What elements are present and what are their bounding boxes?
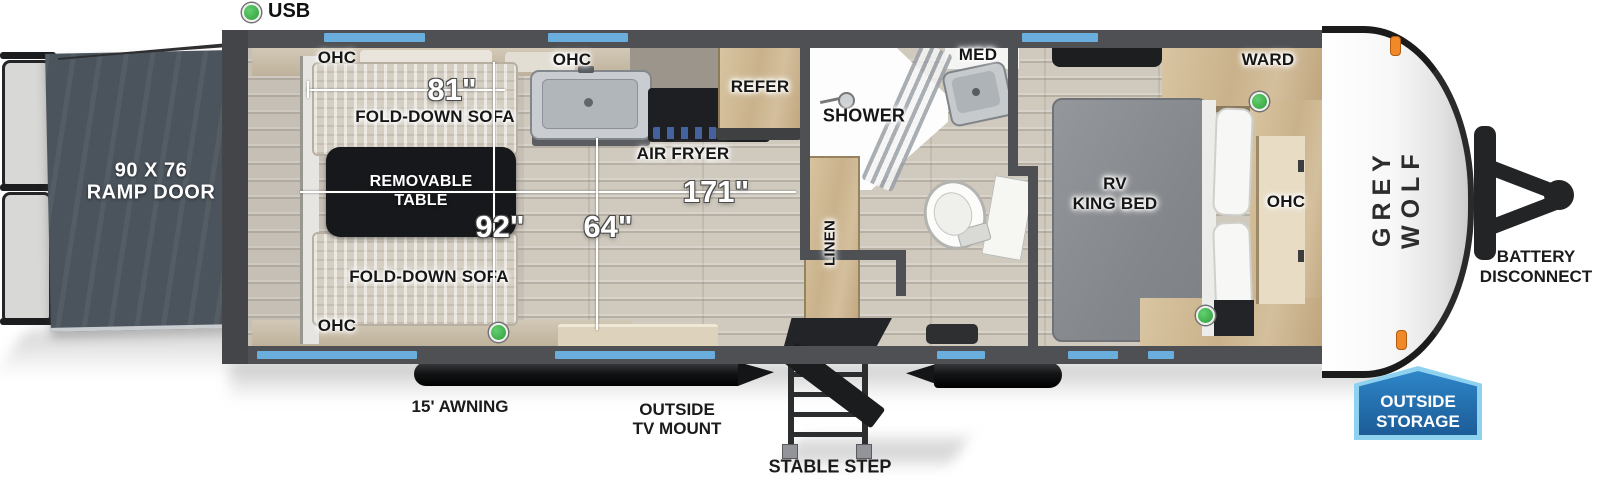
window: [937, 351, 985, 359]
usb-indicator-icon: [489, 323, 508, 342]
awning-tube-right: [934, 362, 1062, 388]
window: [257, 351, 417, 359]
linen-label: LINEN: [822, 220, 839, 266]
removable-table-label: TABLE: [394, 192, 447, 210]
window: [324, 33, 425, 42]
battery-disconnect-label: DISCONNECT: [1480, 267, 1592, 287]
dim-line-92: [493, 62, 495, 330]
bath-sink-drain: [972, 88, 980, 96]
tv-mount-label: OUTSIDE: [639, 400, 715, 420]
wall-rear: [222, 30, 248, 364]
usb-indicator-icon: [1250, 92, 1269, 111]
window: [548, 33, 628, 42]
hitch-coupler: [1544, 180, 1574, 210]
outside-storage-label: STORAGE: [1354, 412, 1482, 432]
window: [1068, 351, 1118, 359]
awning-tube-left: [414, 362, 738, 386]
ohc-label-bedroom: OHC: [1267, 192, 1305, 212]
dim-92: 92": [475, 209, 524, 245]
dim-81: 81": [427, 72, 476, 108]
dim-64: 64": [583, 209, 632, 245]
sink-drain: [584, 98, 593, 107]
window: [1148, 351, 1174, 359]
bedroom-cubby: [1214, 300, 1254, 336]
brand-text: GREY WOLF: [1368, 96, 1426, 300]
wall-bath-right-upper: [1008, 48, 1018, 170]
refer-label: REFER: [731, 77, 790, 97]
usb-indicator-icon: [1196, 306, 1215, 325]
tv-mount-label: TV MOUNT: [633, 419, 722, 439]
ohc-label-garage-bottom: OHC: [318, 316, 356, 336]
bed-label: RV: [1103, 174, 1127, 194]
ramp-door-name-label: RAMP DOOR: [87, 182, 216, 205]
entry-step-box: [926, 324, 978, 344]
burner-row: [653, 127, 719, 139]
ohc-label-garage-top: OHC: [318, 48, 356, 68]
hitch-jack: [1474, 126, 1496, 260]
ward-label: WARD: [1242, 50, 1295, 70]
wardrobe-hinge: [1298, 250, 1304, 262]
awning-label: 15' AWNING: [412, 397, 509, 417]
ramp-door-size-label: 90 X 76: [115, 160, 187, 183]
entry-door-open: [784, 318, 892, 346]
stable-step-label: STABLE STEP: [769, 457, 892, 478]
wardrobe-hinge: [1298, 160, 1304, 172]
step-rung: [788, 432, 868, 437]
fold-down-sofa-top-label: FOLD-DOWN SOFA: [355, 107, 515, 127]
wall-bath-stub: [896, 250, 906, 296]
med-label: MED: [959, 45, 997, 65]
dim-tick-81: [307, 81, 309, 98]
rv-floorplan-canvas: USB 90 X 76 RAMP DOOR REMOVABLE TABLE OH…: [0, 0, 1600, 492]
refrigerator-base: [716, 128, 802, 140]
outside-storage-label: OUTSIDE: [1354, 392, 1482, 412]
ramp-hinge-bar: [0, 318, 56, 325]
usb-label: USB: [268, 0, 310, 23]
bed-label: KING BED: [1073, 194, 1158, 214]
bed-pillow: [1212, 107, 1254, 216]
ramp-flap-lower: [2, 192, 52, 324]
removable-table-label: REMOVABLE: [370, 173, 473, 191]
battery-disconnect-label: BATTERY: [1497, 247, 1575, 267]
wall-bedroom: [1028, 166, 1038, 346]
marker-light: [1396, 330, 1407, 350]
shower-label: SHOWER: [823, 106, 905, 127]
usb-indicator-icon: [242, 3, 261, 22]
ohc-label-kitchen: OHC: [553, 50, 591, 70]
ramp-flap-upper: [2, 60, 52, 190]
dim-171: 171": [683, 174, 749, 210]
window: [555, 351, 715, 359]
marker-light: [1390, 36, 1401, 56]
air-fryer-label: AIR FRYER: [637, 144, 730, 164]
window: [1022, 33, 1098, 42]
wall-bath-left: [800, 48, 810, 260]
fold-down-sofa-bottom-label: FOLD-DOWN SOFA: [349, 267, 509, 287]
